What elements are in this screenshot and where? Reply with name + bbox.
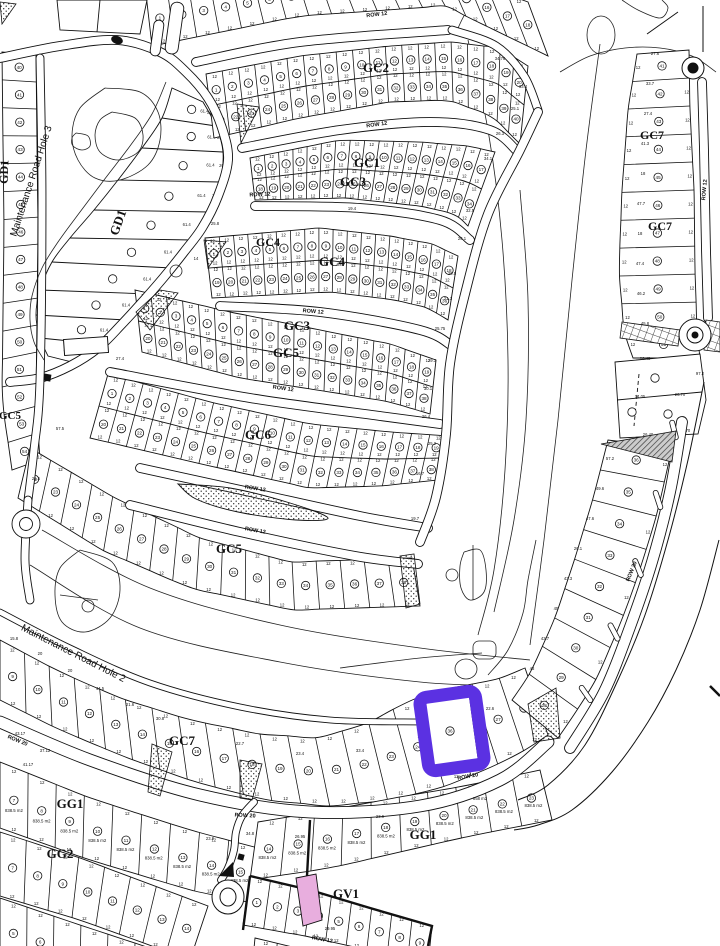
svg-text:12: 12 (37, 714, 42, 719)
svg-text:17: 17 (473, 60, 479, 65)
svg-text:12: 12 (346, 359, 351, 364)
svg-text:12: 12 (598, 660, 603, 665)
svg-text:12: 12 (207, 364, 212, 369)
svg-text:20: 20 (68, 668, 73, 673)
svg-text:17: 17 (394, 360, 400, 365)
svg-text:12: 12 (350, 193, 355, 198)
svg-text:12: 12 (328, 76, 333, 81)
svg-text:26: 26 (310, 275, 316, 280)
svg-text:15: 15 (296, 842, 302, 847)
svg-text:9: 9 (11, 674, 14, 679)
svg-text:858 m2: 858 m2 (473, 796, 488, 801)
svg-text:12: 12 (183, 34, 188, 39)
svg-text:16: 16 (421, 257, 427, 262)
svg-text:43: 43 (656, 119, 662, 124)
svg-text:GC5: GC5 (216, 541, 243, 556)
svg-text:27: 27 (323, 274, 329, 279)
svg-text:12: 12 (11, 701, 16, 706)
svg-text:12: 12 (247, 90, 252, 95)
svg-text:12: 12 (410, 96, 415, 101)
svg-text:12: 12 (295, 13, 300, 18)
svg-text:12: 12 (150, 873, 155, 878)
svg-text:14: 14 (342, 442, 348, 447)
svg-text:14: 14 (266, 846, 272, 851)
svg-text:12: 12 (272, 736, 277, 741)
svg-text:12: 12 (462, 216, 467, 221)
svg-text:12: 12 (159, 320, 164, 325)
svg-text:37: 37 (377, 581, 383, 586)
svg-text:12: 12 (406, 264, 411, 269)
svg-text:47.7: 47.7 (637, 201, 646, 206)
svg-text:12: 12 (314, 110, 319, 115)
svg-text:12: 12 (441, 44, 446, 49)
svg-text:23: 23 (389, 754, 395, 759)
svg-text:12: 12 (393, 67, 398, 72)
svg-text:23: 23 (191, 348, 197, 353)
svg-text:17: 17 (397, 445, 403, 450)
svg-text:3: 3 (297, 909, 300, 914)
svg-text:12: 12 (236, 315, 241, 320)
svg-text:12: 12 (113, 551, 118, 556)
svg-text:12: 12 (306, 438, 312, 443)
svg-text:12: 12 (266, 447, 271, 452)
svg-text:9: 9 (325, 244, 328, 249)
svg-text:12: 12 (380, 236, 385, 241)
svg-text:12: 12 (330, 604, 335, 609)
svg-text:12: 12 (286, 444, 291, 449)
svg-text:12: 12 (411, 795, 416, 800)
svg-text:12: 12 (345, 429, 350, 434)
svg-text:26.1: 26.1 (574, 546, 583, 551)
svg-text:12: 12 (283, 796, 288, 801)
svg-text:29: 29 (559, 675, 565, 680)
svg-text:42: 42 (657, 91, 663, 96)
svg-text:32.5: 32.5 (466, 208, 475, 213)
svg-text:12: 12 (327, 427, 332, 432)
svg-text:12: 12 (298, 113, 303, 118)
svg-text:12: 12 (231, 94, 236, 99)
svg-text:6: 6 (39, 940, 42, 945)
svg-text:12: 12 (251, 123, 256, 128)
svg-text:12: 12 (458, 67, 463, 72)
svg-text:34: 34 (426, 84, 432, 89)
svg-text:49.6: 49.6 (596, 486, 605, 491)
svg-text:12: 12 (248, 443, 253, 448)
svg-text:GD1: GD1 (0, 160, 11, 184)
svg-text:12: 12 (473, 16, 478, 21)
svg-text:36: 36 (392, 469, 398, 474)
svg-text:16: 16 (379, 444, 385, 449)
svg-text:12: 12 (70, 526, 75, 531)
svg-text:23: 23 (529, 796, 535, 801)
svg-text:12: 12 (255, 598, 260, 603)
svg-text:12: 12 (272, 16, 277, 21)
svg-text:12: 12 (414, 843, 419, 848)
svg-text:28: 28 (329, 95, 335, 100)
svg-text:12: 12 (280, 90, 285, 95)
svg-text:12: 12 (380, 602, 385, 607)
svg-text:27: 27 (252, 362, 258, 367)
svg-text:12: 12 (686, 146, 691, 151)
svg-text:12: 12 (365, 258, 370, 263)
svg-text:12: 12 (255, 157, 260, 162)
svg-text:6: 6 (268, 0, 271, 2)
svg-text:838.5 m2: 838.5 m2 (495, 809, 514, 814)
svg-text:12: 12 (351, 263, 356, 268)
svg-text:12: 12 (324, 193, 329, 198)
svg-text:20: 20 (228, 279, 234, 284)
svg-text:12: 12 (441, 145, 446, 150)
svg-text:12: 12 (87, 711, 93, 716)
svg-text:27.6: 27.6 (651, 51, 660, 56)
svg-text:838.5 m2: 838.5 m2 (348, 840, 367, 845)
svg-text:27.4: 27.4 (644, 111, 653, 116)
svg-text:12: 12 (267, 120, 272, 125)
svg-text:12: 12 (325, 164, 330, 169)
svg-text:12: 12 (125, 811, 130, 816)
svg-text:12: 12 (124, 406, 129, 411)
svg-text:50: 50 (657, 315, 663, 320)
svg-text:3: 3 (247, 81, 250, 86)
svg-text:12: 12 (514, 36, 519, 41)
svg-text:10: 10 (382, 155, 388, 160)
svg-text:GC3: GC3 (284, 318, 311, 333)
svg-text:11: 11 (288, 435, 293, 440)
svg-text:12: 12 (390, 480, 395, 485)
svg-text:29: 29 (283, 367, 289, 372)
svg-text:12: 12 (291, 422, 296, 427)
svg-text:12: 12 (516, 92, 521, 97)
svg-text:GC4: GC4 (319, 254, 346, 269)
svg-text:37: 37 (406, 391, 412, 396)
svg-text:12: 12 (622, 232, 627, 237)
svg-text:10: 10 (337, 245, 343, 250)
svg-text:GC7: GC7 (648, 219, 672, 233)
svg-text:18: 18 (489, 64, 495, 69)
svg-text:12: 12 (279, 84, 284, 89)
svg-text:14: 14 (140, 732, 146, 737)
svg-text:12: 12 (384, 142, 389, 147)
svg-text:12: 12 (255, 414, 260, 419)
svg-text:12: 12 (268, 263, 273, 268)
svg-text:12: 12 (272, 195, 277, 200)
svg-text:12: 12 (507, 751, 512, 756)
svg-text:12: 12 (283, 380, 288, 385)
svg-text:20: 20 (145, 336, 151, 341)
svg-text:12: 12 (489, 75, 494, 80)
svg-text:12: 12 (248, 97, 253, 102)
svg-text:20.5: 20.5 (448, 271, 457, 276)
svg-text:31: 31 (377, 87, 383, 92)
svg-text:11: 11 (396, 156, 401, 161)
svg-text:13: 13 (180, 855, 186, 860)
svg-text:12: 12 (408, 166, 413, 171)
svg-text:GC7: GC7 (640, 128, 664, 142)
svg-text:12: 12 (296, 262, 301, 267)
svg-text:12: 12 (512, 132, 517, 137)
svg-text:3: 3 (241, 249, 244, 254)
svg-text:18: 18 (409, 365, 415, 370)
svg-text:7: 7 (297, 245, 300, 250)
svg-text:12: 12 (420, 174, 425, 179)
svg-text:33: 33 (279, 581, 285, 586)
svg-text:45: 45 (554, 606, 559, 611)
svg-text:12: 12 (255, 264, 260, 269)
svg-text:12: 12 (302, 562, 307, 567)
svg-text:12: 12 (405, 706, 410, 711)
svg-text:3: 3 (202, 8, 205, 13)
svg-text:12: 12 (140, 883, 145, 888)
svg-text:12: 12 (395, 348, 400, 353)
svg-text:12: 12 (263, 941, 268, 946)
svg-text:12: 12 (270, 289, 275, 294)
svg-text:12: 12 (359, 50, 364, 55)
svg-text:26.1: 26.1 (458, 236, 467, 241)
svg-text:12: 12 (375, 395, 380, 400)
svg-text:12: 12 (370, 795, 375, 800)
svg-text:4: 4 (190, 318, 193, 323)
svg-text:25.2: 25.2 (428, 441, 437, 446)
svg-text:40: 40 (513, 117, 519, 122)
svg-text:12: 12 (431, 3, 436, 8)
svg-text:11: 11 (351, 247, 356, 252)
svg-text:61.4: 61.4 (143, 276, 152, 281)
svg-text:41.3: 41.3 (641, 141, 650, 146)
svg-text:21.3: 21.3 (444, 296, 453, 301)
svg-text:12: 12 (344, 80, 349, 85)
svg-text:12: 12 (324, 230, 329, 235)
svg-text:22: 22 (311, 183, 317, 188)
svg-text:12: 12 (427, 202, 432, 207)
svg-text:12: 12 (394, 239, 399, 244)
svg-text:34.76: 34.76 (495, 56, 506, 61)
svg-text:12: 12 (299, 350, 304, 355)
svg-text:12: 12 (284, 169, 289, 174)
svg-text:12: 12 (394, 165, 399, 170)
svg-text:12: 12 (10, 648, 15, 653)
svg-text:33: 33 (404, 284, 410, 289)
svg-text:12: 12 (312, 85, 317, 90)
svg-text:12: 12 (347, 337, 352, 342)
svg-text:22: 22 (137, 431, 143, 436)
svg-text:12: 12 (447, 178, 452, 183)
svg-text:18: 18 (525, 22, 531, 27)
svg-text:43.17: 43.17 (15, 731, 26, 736)
svg-text:12: 12 (353, 481, 358, 486)
svg-text:12: 12 (433, 271, 438, 276)
svg-text:12: 12 (377, 371, 382, 376)
svg-text:8: 8 (328, 67, 331, 72)
svg-text:12: 12 (171, 769, 176, 774)
svg-text:12: 12 (34, 901, 39, 906)
svg-text:38: 38 (429, 467, 435, 472)
svg-text:12: 12 (632, 93, 637, 98)
svg-text:13: 13 (424, 157, 430, 162)
svg-text:12: 12 (179, 882, 184, 887)
svg-text:12: 12 (153, 942, 158, 946)
svg-text:12: 12 (131, 383, 136, 388)
svg-text:12: 12 (354, 729, 359, 734)
svg-text:12: 12 (226, 785, 231, 790)
svg-text:25.1: 25.1 (511, 106, 520, 111)
svg-text:10: 10 (283, 338, 289, 343)
svg-text:12: 12 (173, 301, 178, 306)
svg-text:17: 17 (222, 756, 228, 761)
svg-text:12: 12 (401, 199, 406, 204)
svg-text:14: 14 (194, 256, 199, 261)
svg-text:12: 12 (309, 230, 314, 235)
svg-text:12: 12 (257, 177, 262, 182)
svg-text:12: 12 (116, 749, 121, 754)
svg-text:12: 12 (115, 873, 120, 878)
svg-text:12: 12 (284, 451, 289, 456)
svg-text:12: 12 (445, 278, 450, 283)
svg-text:16: 16 (378, 356, 384, 361)
svg-text:12: 12 (337, 193, 342, 198)
svg-text:12: 12 (393, 368, 398, 373)
svg-text:34: 34 (417, 288, 423, 293)
svg-text:12: 12 (690, 286, 695, 291)
svg-text:12: 12 (391, 47, 396, 52)
svg-text:12: 12 (346, 365, 351, 370)
svg-text:12: 12 (408, 373, 413, 378)
svg-text:12: 12 (408, 478, 413, 483)
svg-text:11: 11 (110, 899, 115, 904)
svg-text:12: 12 (142, 410, 147, 415)
svg-text:12: 12 (176, 426, 181, 431)
svg-text:12: 12 (511, 675, 516, 680)
svg-text:12: 12 (412, 457, 417, 462)
svg-text:12: 12 (186, 533, 191, 538)
svg-text:30.8: 30.8 (156, 716, 165, 721)
svg-text:12: 12 (489, 82, 494, 87)
svg-text:12: 12 (269, 154, 274, 159)
svg-text:44: 44 (656, 147, 662, 152)
svg-text:15: 15 (360, 443, 366, 448)
svg-text:31: 31 (430, 190, 436, 195)
svg-text:12: 12 (48, 513, 53, 518)
svg-text:12: 12 (159, 570, 164, 575)
svg-text:12: 12 (170, 452, 175, 457)
svg-text:12: 12 (350, 560, 355, 565)
svg-text:12: 12 (517, 0, 522, 4)
svg-text:12: 12 (250, 21, 255, 26)
svg-text:32: 32 (330, 375, 336, 380)
svg-text:12: 12 (300, 738, 305, 743)
svg-text:36: 36 (391, 387, 397, 392)
svg-text:ROW 20: ROW 20 (234, 812, 255, 819)
svg-text:7: 7 (312, 69, 315, 74)
svg-text:19.7: 19.7 (411, 516, 420, 521)
svg-text:36: 36 (352, 582, 358, 587)
svg-text:1: 1 (111, 391, 114, 396)
svg-text:13: 13 (113, 722, 119, 727)
svg-text:12: 12 (474, 179, 479, 184)
svg-text:49: 49 (17, 312, 23, 317)
svg-text:35: 35 (430, 292, 436, 297)
svg-text:26.3: 26.3 (496, 131, 505, 136)
svg-text:12: 12 (330, 107, 335, 112)
svg-text:18: 18 (258, 187, 264, 192)
svg-text:12: 12 (350, 289, 355, 294)
svg-text:12: 12 (324, 863, 329, 868)
svg-text:12: 12 (684, 90, 689, 95)
svg-text:6: 6 (295, 71, 298, 76)
svg-text:20: 20 (441, 813, 447, 818)
svg-text:12: 12 (282, 263, 287, 268)
svg-text:31: 31 (314, 372, 320, 377)
svg-text:61.4: 61.4 (206, 163, 215, 168)
svg-text:12: 12 (362, 368, 367, 373)
svg-text:12: 12 (317, 10, 322, 15)
svg-text:12: 12 (316, 331, 321, 336)
svg-text:12: 12 (232, 432, 237, 437)
svg-text:30: 30 (573, 645, 579, 650)
svg-text:12: 12 (206, 460, 211, 465)
svg-text:27: 27 (313, 98, 319, 103)
svg-text:12: 12 (37, 846, 42, 851)
svg-text:838.5 m2: 838.5 m2 (465, 815, 484, 820)
svg-text:30.1: 30.1 (424, 386, 433, 391)
svg-text:12: 12 (426, 72, 431, 77)
svg-text:12: 12 (174, 323, 179, 328)
svg-text:12: 12 (241, 845, 246, 850)
svg-text:12: 12 (687, 174, 692, 179)
svg-text:838.5 m2: 838.5 m2 (60, 829, 79, 834)
svg-text:7: 7 (237, 329, 240, 334)
svg-text:23: 23 (53, 490, 59, 495)
svg-text:12: 12 (312, 78, 317, 83)
svg-text:42: 42 (17, 120, 23, 125)
svg-text:12: 12 (426, 783, 431, 788)
svg-text:12: 12 (219, 406, 224, 411)
svg-text:12: 12 (261, 472, 266, 477)
svg-text:12: 12 (534, 818, 539, 823)
svg-text:GG1: GG1 (410, 827, 437, 842)
svg-text:12: 12 (240, 259, 245, 264)
svg-text:12: 12 (460, 181, 465, 186)
svg-text:25.8: 25.8 (211, 221, 220, 226)
svg-text:12: 12 (433, 176, 438, 181)
svg-text:12: 12 (388, 197, 393, 202)
svg-text:3: 3 (146, 401, 149, 406)
svg-text:12: 12 (688, 230, 693, 235)
svg-text:21: 21 (471, 807, 477, 812)
svg-text:1: 1 (215, 87, 218, 92)
svg-text:30: 30 (417, 188, 423, 193)
svg-text:12: 12 (280, 603, 285, 608)
svg-text:838.5 m2: 838.5 m2 (377, 833, 396, 838)
svg-text:32: 32 (255, 576, 261, 581)
svg-text:12: 12 (377, 452, 382, 457)
svg-text:23.9: 23.9 (376, 814, 385, 819)
svg-text:13: 13 (331, 347, 337, 352)
svg-text:12: 12 (340, 142, 345, 147)
svg-text:12: 12 (623, 204, 628, 209)
svg-text:12: 12 (298, 194, 303, 199)
svg-text:12: 12 (96, 802, 101, 807)
svg-text:12: 12 (245, 68, 250, 73)
svg-text:GC5: GC5 (273, 345, 300, 360)
svg-text:54: 54 (22, 449, 28, 454)
svg-text:21.5: 21.5 (32, 476, 41, 481)
svg-text:12: 12 (504, 824, 509, 829)
svg-text:14: 14 (393, 252, 399, 257)
svg-text:31: 31 (377, 280, 383, 285)
svg-text:12: 12 (328, 82, 333, 87)
svg-text:12: 12 (363, 431, 368, 436)
svg-text:12: 12 (245, 733, 250, 738)
